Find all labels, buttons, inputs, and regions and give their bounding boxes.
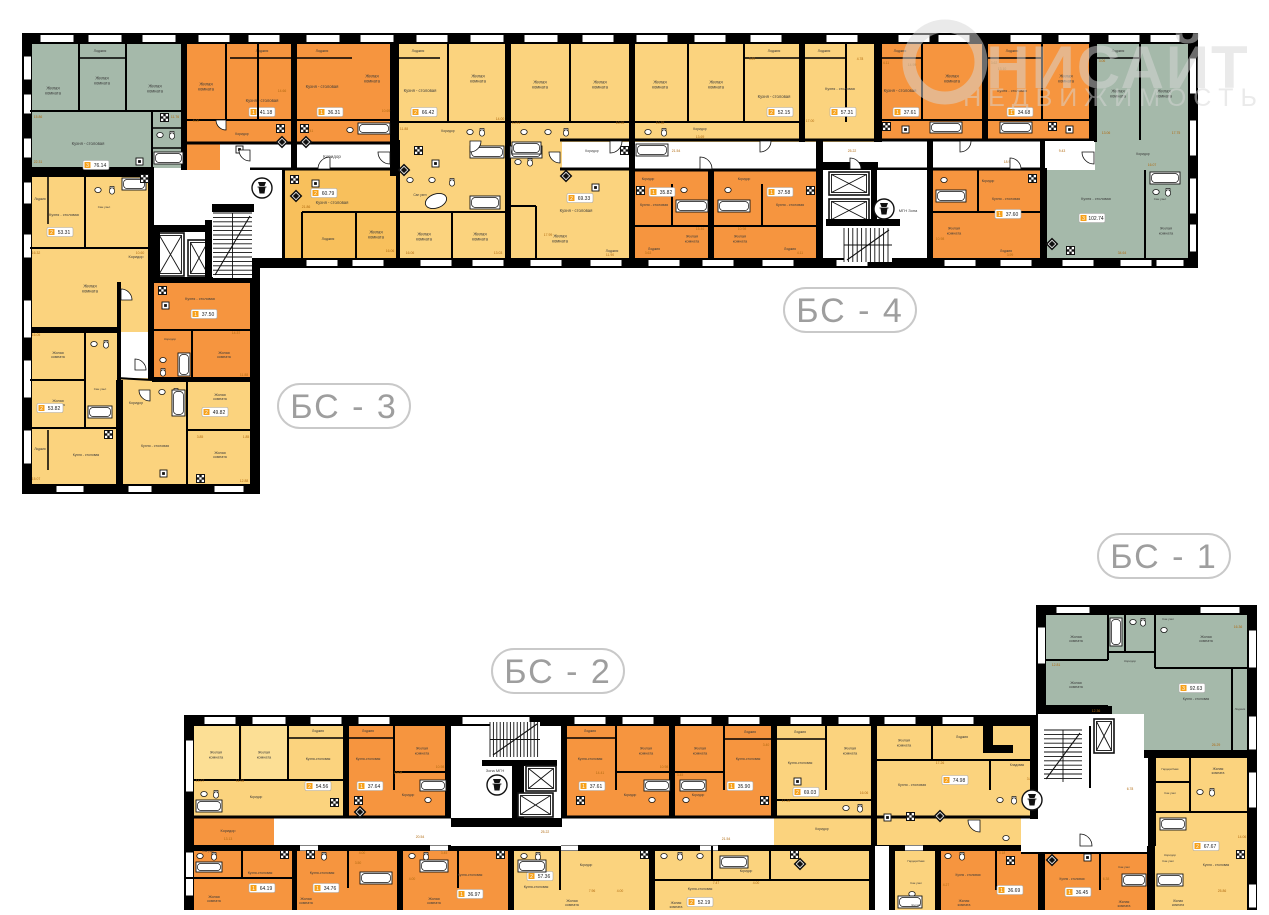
svg-text:Кухня - столовая: Кухня - столовая <box>884 88 917 93</box>
svg-text:2: 2 <box>50 230 53 236</box>
svg-text:2: 2 <box>770 110 773 116</box>
svg-text:Коридор: Коридор <box>129 401 143 405</box>
svg-text:комната: комната <box>368 235 385 240</box>
svg-text:52.15: 52.15 <box>778 110 791 116</box>
svg-text:Лоджия: Лоджия <box>956 735 968 739</box>
svg-text:3.85: 3.85 <box>197 435 204 439</box>
svg-text:комната: комната <box>427 901 441 905</box>
svg-text:Лоджия: Лоджия <box>94 49 107 53</box>
svg-text:Лоджия: Лоджия <box>1235 707 1246 711</box>
svg-text:1: 1 <box>252 110 255 116</box>
svg-text:Сан узел: Сан узел <box>910 881 922 885</box>
svg-text:комната: комната <box>733 239 748 243</box>
svg-text:комната: комната <box>209 755 224 759</box>
svg-text:25.22: 25.22 <box>848 149 857 153</box>
svg-text:Лоджия: Лоджия <box>412 49 425 53</box>
svg-text:4.00: 4.00 <box>617 889 624 893</box>
svg-text:1: 1 <box>652 190 655 196</box>
svg-text:БС - 4: БС - 4 <box>796 292 904 330</box>
svg-text:Кухня-столовая: Кухня-столовая <box>310 871 335 875</box>
svg-text:11.76: 11.76 <box>171 115 179 119</box>
svg-text:1: 1 <box>316 886 319 892</box>
svg-text:13.13: 13.13 <box>224 837 233 841</box>
svg-text:Жилая: Жилая <box>258 751 270 755</box>
svg-text:12.88: 12.88 <box>240 479 249 483</box>
svg-text:БС - 2: БС - 2 <box>504 653 612 691</box>
svg-text:15.46: 15.46 <box>696 227 705 231</box>
svg-text:комната: комната <box>207 899 221 903</box>
svg-text:Кухня-столовая: Кухня-столовая <box>524 885 549 889</box>
svg-text:Кухня-столовая: Кухня-столовая <box>458 873 483 877</box>
svg-text:Сан узел: Сан узел <box>1162 617 1174 621</box>
svg-text:комната: комната <box>364 79 381 84</box>
svg-text:БС - 1: БС - 1 <box>1110 538 1218 576</box>
svg-text:комната: комната <box>217 355 231 359</box>
svg-text:комната: комната <box>685 239 700 243</box>
svg-text:1: 1 <box>770 190 773 196</box>
svg-text:1: 1 <box>998 212 1001 218</box>
svg-text:Лоджия: Лоджия <box>768 49 781 53</box>
svg-text:Коридор: Коридор <box>740 869 753 873</box>
svg-text:Кладовая: Кладовая <box>1010 763 1025 767</box>
svg-text:2: 2 <box>205 410 208 416</box>
svg-text:1: 1 <box>1068 890 1071 896</box>
svg-text:Сан узел: Сан узел <box>1154 197 1167 201</box>
svg-text:14.41: 14.41 <box>596 771 605 775</box>
svg-text:Кухня - столовая: Кухня - столовая <box>1183 697 1210 701</box>
svg-text:Кухня - столовая: Кухня - столовая <box>185 297 215 301</box>
svg-text:Коридор: Коридор <box>164 337 176 341</box>
svg-text:26.29: 26.29 <box>1212 743 1221 747</box>
svg-text:Кухня - столовая: Кухня - столовая <box>49 213 79 217</box>
svg-text:Коридор: Коридор <box>815 827 829 831</box>
svg-text:БС - 3: БС - 3 <box>290 388 398 426</box>
svg-text:Коридор: Коридор <box>1124 659 1136 663</box>
svg-text:МГН Зона: МГН Зона <box>899 208 918 213</box>
svg-text:комната: комната <box>213 455 227 459</box>
svg-text:53.31: 53.31 <box>58 230 71 236</box>
svg-text:37.60: 37.60 <box>1006 212 1019 218</box>
svg-text:11.06: 11.06 <box>236 779 244 783</box>
svg-text:3.45: 3.45 <box>677 773 684 777</box>
svg-text:6.00: 6.00 <box>193 119 200 123</box>
svg-text:Коридор: Коридор <box>738 177 751 181</box>
svg-text:35.82: 35.82 <box>660 190 673 196</box>
svg-text:20.54: 20.54 <box>416 835 425 839</box>
svg-text:11.90: 11.90 <box>606 253 614 257</box>
svg-text:Кухня - столовая: Кухня - столовая <box>898 783 926 787</box>
svg-text:34.76: 34.76 <box>324 886 337 892</box>
svg-text:37.50: 37.50 <box>202 312 215 318</box>
svg-text:Кухня - столовая: Кухня - столовая <box>316 200 349 205</box>
svg-text:Кухня-столовая: Кухня-столовая <box>688 887 713 891</box>
svg-text:комната: комната <box>1199 639 1213 643</box>
svg-text:2: 2 <box>40 406 43 412</box>
svg-text:Лоджия: Лоджия <box>34 197 46 201</box>
svg-text:37.58: 37.58 <box>778 190 791 196</box>
svg-text:Кухня - столовая: Кухня - столовая <box>1081 197 1111 201</box>
svg-text:49.82: 49.82 <box>213 410 226 416</box>
svg-text:Сан узел: Сан узел <box>1162 859 1174 863</box>
svg-text:2: 2 <box>945 778 948 784</box>
svg-text:16.07: 16.07 <box>1148 163 1157 167</box>
svg-text:Кухня-столовая: Кухня-столовая <box>248 871 273 875</box>
svg-text:Сан узел: Сан узел <box>1164 791 1176 795</box>
svg-text:74.98: 74.98 <box>953 778 966 784</box>
svg-text:14.66: 14.66 <box>278 89 287 93</box>
svg-text:Жилая: Жилая <box>1160 227 1172 231</box>
svg-text:комната: комната <box>944 79 961 84</box>
svg-text:10.95: 10.95 <box>616 121 625 125</box>
svg-text:Зона МГН: Зона МГН <box>486 768 505 773</box>
svg-text:Н Е Д В И Ж И М О С Т Ь: Н Е Д В И Ж И М О С Т Ь <box>963 84 1257 112</box>
svg-text:3.69: 3.69 <box>749 57 756 61</box>
svg-text:Кухня - столовая: Кухня - столовая <box>640 203 668 207</box>
svg-text:Кухня - столовая: Кухня - столовая <box>73 453 100 457</box>
svg-text:комната: комната <box>592 85 609 90</box>
svg-text:1: 1 <box>320 110 323 116</box>
svg-text:комната: комната <box>299 901 313 905</box>
svg-text:53.82: 53.82 <box>48 406 61 412</box>
svg-text:4.00: 4.00 <box>753 881 760 885</box>
svg-text:17.99: 17.99 <box>544 233 553 237</box>
svg-text:Жилая: Жилая <box>686 235 698 239</box>
svg-text:Коридор: Коридор <box>580 863 593 867</box>
svg-text:Коридор: Коридор <box>585 149 599 153</box>
svg-text:11.88: 11.88 <box>400 127 408 131</box>
svg-text:комната: комната <box>652 85 669 90</box>
svg-text:Кухня-столовая: Кухня-столовая <box>736 757 761 761</box>
svg-text:комната: комната <box>1212 771 1225 775</box>
svg-text:2: 2 <box>796 790 799 796</box>
svg-text:3.99: 3.99 <box>1007 253 1014 257</box>
svg-text:67.67: 67.67 <box>1204 844 1217 850</box>
svg-text:15.86: 15.86 <box>34 115 43 119</box>
svg-text:Коридор: Коридор <box>982 179 995 183</box>
svg-text:Коридор: Коридор <box>402 793 415 797</box>
svg-text:3.40: 3.40 <box>763 743 770 747</box>
svg-text:13.69: 13.69 <box>696 135 705 139</box>
svg-text:Коридор: Коридор <box>624 793 637 797</box>
svg-text:Жилая: Жилая <box>898 739 910 743</box>
svg-text:16.06: 16.06 <box>386 249 395 253</box>
svg-text:Лоджия: Лоджия <box>322 237 335 241</box>
svg-text:14.07: 14.07 <box>196 779 205 783</box>
svg-text:Лоджия: Лоджия <box>794 730 806 734</box>
svg-text:1: 1 <box>896 110 899 116</box>
svg-text:10.98: 10.98 <box>936 237 945 241</box>
svg-text:36.45: 36.45 <box>1076 890 1089 896</box>
svg-text:21.54: 21.54 <box>722 837 731 841</box>
svg-text:66.42: 66.42 <box>422 110 435 116</box>
svg-text:12.81: 12.81 <box>1052 663 1061 667</box>
svg-text:10.69: 10.69 <box>382 109 391 113</box>
svg-text:Коридор: Коридор <box>235 132 249 136</box>
svg-text:14.00: 14.00 <box>496 117 505 121</box>
svg-text:2: 2 <box>570 196 573 202</box>
svg-text:17.26: 17.26 <box>936 761 945 765</box>
svg-text:Жилая: Жилая <box>210 751 222 755</box>
svg-text:10.08: 10.08 <box>394 771 403 775</box>
svg-text:Кухня - столовая: Кухня - столовая <box>72 141 105 146</box>
svg-text:Кухня - столовая: Кухня - столовая <box>141 444 169 448</box>
svg-text:36.31: 36.31 <box>328 110 341 116</box>
svg-text:комната: комната <box>213 397 227 401</box>
svg-text:Коридор: Коридор <box>1136 152 1150 156</box>
svg-text:Кухня - столовая: Кухня - столовая <box>560 208 593 213</box>
svg-text:4.00: 4.00 <box>359 851 366 855</box>
svg-text:11.88: 11.88 <box>240 373 248 377</box>
svg-text:комната: комната <box>257 755 272 759</box>
svg-text:1: 1 <box>252 886 255 892</box>
svg-text:Лоджия: Лоджия <box>316 49 329 53</box>
svg-text:36.97: 36.97 <box>468 892 481 898</box>
svg-text:1: 1 <box>460 892 463 898</box>
svg-text:34.64: 34.64 <box>1118 251 1127 255</box>
svg-text:52.19: 52.19 <box>698 900 711 906</box>
svg-text:комната: комната <box>51 355 65 359</box>
svg-text:комната: комната <box>1172 903 1184 907</box>
svg-text:Сан узел: Сан узел <box>94 387 107 391</box>
svg-text:Гардеробная: Гардеробная <box>1162 767 1179 771</box>
svg-text:3: 3 <box>86 163 89 169</box>
svg-text:Лоджия: Лоджия <box>34 447 46 451</box>
svg-text:3: 3 <box>1182 686 1185 692</box>
svg-text:37.64: 37.64 <box>368 784 381 790</box>
svg-text:Коридор: Коридор <box>642 177 655 181</box>
svg-text:Сан узел: Сан узел <box>1118 865 1130 869</box>
svg-text:16.32: 16.32 <box>32 251 41 255</box>
svg-text:1: 1 <box>360 784 363 790</box>
svg-text:60.79: 60.79 <box>322 191 335 197</box>
svg-text:комната: комната <box>82 289 99 294</box>
svg-text:комната: комната <box>45 91 62 96</box>
svg-text:9.43: 9.43 <box>1059 149 1066 153</box>
svg-text:Кухня - столовая: Кухня - столовая <box>758 94 791 99</box>
svg-text:комната: комната <box>472 237 489 242</box>
svg-text:комната: комната <box>958 903 971 907</box>
svg-text:комната: комната <box>1069 639 1083 643</box>
svg-text:Жилая: Жилая <box>734 235 746 239</box>
svg-text:Кухня - столовая: Кухня - столовая <box>246 98 279 103</box>
svg-text:2: 2 <box>833 110 836 116</box>
svg-text:2: 2 <box>1196 844 1199 850</box>
svg-text:комната: комната <box>532 85 549 90</box>
svg-text:12.36: 12.36 <box>1092 709 1101 713</box>
svg-text:3.18: 3.18 <box>999 851 1006 855</box>
svg-text:Кухня - столовая: Кухня - столовая <box>825 87 855 91</box>
svg-text:1.85: 1.85 <box>243 435 250 439</box>
svg-text:3.50: 3.50 <box>355 861 362 865</box>
svg-text:10.91: 10.91 <box>512 121 521 125</box>
svg-text:комната: комната <box>708 85 725 90</box>
svg-text:21.86: 21.86 <box>302 205 311 209</box>
svg-text:комната: комната <box>552 239 569 244</box>
svg-text:13.06: 13.06 <box>1102 131 1111 135</box>
svg-text:3: 3 <box>1082 216 1085 222</box>
svg-text:16.06: 16.06 <box>406 251 415 255</box>
svg-text:Кухня - столовая: Кухня - столовая <box>404 88 437 93</box>
svg-text:3.63: 3.63 <box>645 251 652 255</box>
svg-text:57.31: 57.31 <box>841 110 854 116</box>
svg-text:комната: комната <box>693 751 708 755</box>
svg-text:Кухня - столовая: Кухня - столовая <box>956 873 981 877</box>
svg-text:Гардеробная: Гардеробная <box>908 859 925 863</box>
svg-text:Коридор: Коридор <box>692 793 705 797</box>
svg-text:1: 1 <box>1000 888 1003 894</box>
svg-text:Кухня-столовая: Кухня-столовая <box>578 757 603 761</box>
svg-text:Кухня - столовая: Кухня - столовая <box>1203 863 1230 867</box>
svg-text:комната: комната <box>1159 231 1174 235</box>
svg-text:Сан узел: Сан узел <box>98 205 111 209</box>
svg-text:2: 2 <box>414 110 417 116</box>
svg-text:1: 1 <box>582 784 585 790</box>
svg-text:Коридор: Коридор <box>441 129 455 133</box>
svg-text:92.63: 92.63 <box>1190 686 1203 692</box>
svg-text:комната: комната <box>416 237 433 242</box>
svg-text:Жилая: Жилая <box>640 747 652 751</box>
svg-text:37.61: 37.61 <box>904 110 917 116</box>
svg-text:3.45: 3.45 <box>441 851 448 855</box>
svg-text:Коридор: Коридор <box>1164 853 1176 857</box>
svg-text:Лоджия: Лоджия <box>362 729 374 733</box>
svg-text:10.98: 10.98 <box>436 765 445 769</box>
svg-text:36.69: 36.69 <box>1008 888 1021 894</box>
svg-text:Сан узел: Сан узел <box>202 849 214 853</box>
svg-text:54.56: 54.56 <box>316 784 329 790</box>
svg-text:41.18: 41.18 <box>260 110 273 116</box>
svg-text:14.37: 14.37 <box>232 331 241 335</box>
svg-text:10.98: 10.98 <box>660 765 669 769</box>
svg-text:комната: комната <box>843 751 858 755</box>
svg-text:Жилая: Жилая <box>694 747 706 751</box>
svg-text:1: 1 <box>194 312 197 318</box>
svg-text:14.06: 14.06 <box>1238 835 1247 839</box>
svg-text:комната: комната <box>1118 904 1131 908</box>
svg-text:2: 2 <box>530 874 533 880</box>
svg-text:6.38: 6.38 <box>1103 877 1110 881</box>
svg-text:16.36: 16.36 <box>1234 625 1243 629</box>
svg-text:25.22: 25.22 <box>541 830 550 834</box>
svg-text:35.90: 35.90 <box>738 784 751 790</box>
svg-text:2: 2 <box>314 191 317 197</box>
svg-text:Коридор: Коридор <box>693 127 707 131</box>
svg-text:4.11: 4.11 <box>883 61 889 65</box>
svg-text:комната: комната <box>565 903 579 907</box>
svg-text:комната: комната <box>947 231 962 235</box>
svg-text:Жилая: Жилая <box>948 227 960 231</box>
svg-text:17.00: 17.00 <box>806 119 815 123</box>
svg-text:Кухня - столовая: Кухня - столовая <box>1060 877 1085 881</box>
svg-text:Лоджия: Лоджия <box>818 49 831 53</box>
svg-text:Лоджия: Лоджия <box>744 730 756 734</box>
svg-text:4.78: 4.78 <box>857 57 864 61</box>
svg-text:Кухня - столовая: Кухня - столовая <box>776 203 804 207</box>
svg-text:Коридор: Коридор <box>221 829 236 833</box>
svg-text:комната: комната <box>639 751 654 755</box>
svg-text:69.33: 69.33 <box>578 196 591 202</box>
svg-text:Жилая: Жилая <box>416 747 428 751</box>
svg-text:Лоджия: Лоджия <box>784 247 796 251</box>
svg-text:102.74: 102.74 <box>1088 216 1104 222</box>
svg-text:64.19: 64.19 <box>260 886 273 892</box>
svg-text:Коридор: Коридор <box>129 255 144 259</box>
svg-text:Лоджия: Лоджия <box>584 729 596 733</box>
svg-text:4.11: 4.11 <box>797 251 803 255</box>
svg-text:6.78: 6.78 <box>1127 787 1134 791</box>
svg-text:комната: комната <box>415 751 430 755</box>
svg-text:комната: комната <box>670 905 683 909</box>
svg-text:комната: комната <box>147 89 164 94</box>
svg-text:1: 1 <box>730 784 733 790</box>
svg-text:76.14: 76.14 <box>94 163 107 169</box>
svg-text:21.54: 21.54 <box>672 149 681 153</box>
svg-text:25.86: 25.86 <box>1218 889 1227 893</box>
svg-text:17.75: 17.75 <box>1172 131 1181 135</box>
svg-text:15.07: 15.07 <box>32 477 41 481</box>
svg-text:Коридор: Коридор <box>250 795 263 799</box>
svg-text:Жилая: Жилая <box>844 747 856 751</box>
svg-text:57.36: 57.36 <box>538 874 551 880</box>
svg-text:16.06: 16.06 <box>860 791 869 795</box>
svg-text:комната: комната <box>1069 685 1083 689</box>
svg-text:Кухня - столовая: Кухня - столовая <box>992 197 1020 201</box>
svg-text:комната: комната <box>198 87 215 92</box>
svg-text:Кухня-столовая: Кухня-столовая <box>356 757 381 761</box>
svg-text:Сан узел: Сан узел <box>413 193 426 197</box>
svg-text:комната: комната <box>470 79 487 84</box>
svg-text:3.41: 3.41 <box>307 129 314 133</box>
svg-text:13.03: 13.03 <box>494 251 503 255</box>
svg-text:10.98: 10.98 <box>738 227 747 231</box>
svg-text:69.03: 69.03 <box>804 790 817 796</box>
svg-text:2: 2 <box>308 784 311 790</box>
svg-text:16.05: 16.05 <box>32 333 41 337</box>
svg-text:комната: комната <box>897 743 912 747</box>
svg-text:4.27: 4.27 <box>943 883 950 887</box>
svg-text:10.35: 10.35 <box>656 121 665 125</box>
svg-text:Кухня-столовая: Кухня-столовая <box>306 757 331 761</box>
svg-text:Кухня - столовая: Кухня - столовая <box>306 84 339 89</box>
svg-text:Жилая: Жилая <box>911 903 921 907</box>
svg-text:22.31: 22.31 <box>34 160 43 164</box>
svg-text:7.47: 7.47 <box>713 881 720 885</box>
svg-text:комната: комната <box>94 81 111 86</box>
svg-text:2: 2 <box>690 900 693 906</box>
svg-text:Лоджия: Лоджия <box>312 729 324 733</box>
svg-text:4.00: 4.00 <box>409 877 416 881</box>
svg-text:7.96: 7.96 <box>589 889 596 893</box>
svg-text:Кухня-столовая: Кухня-столовая <box>788 761 813 765</box>
svg-text:37.61: 37.61 <box>590 784 603 790</box>
svg-text:17.26: 17.26 <box>782 799 791 803</box>
